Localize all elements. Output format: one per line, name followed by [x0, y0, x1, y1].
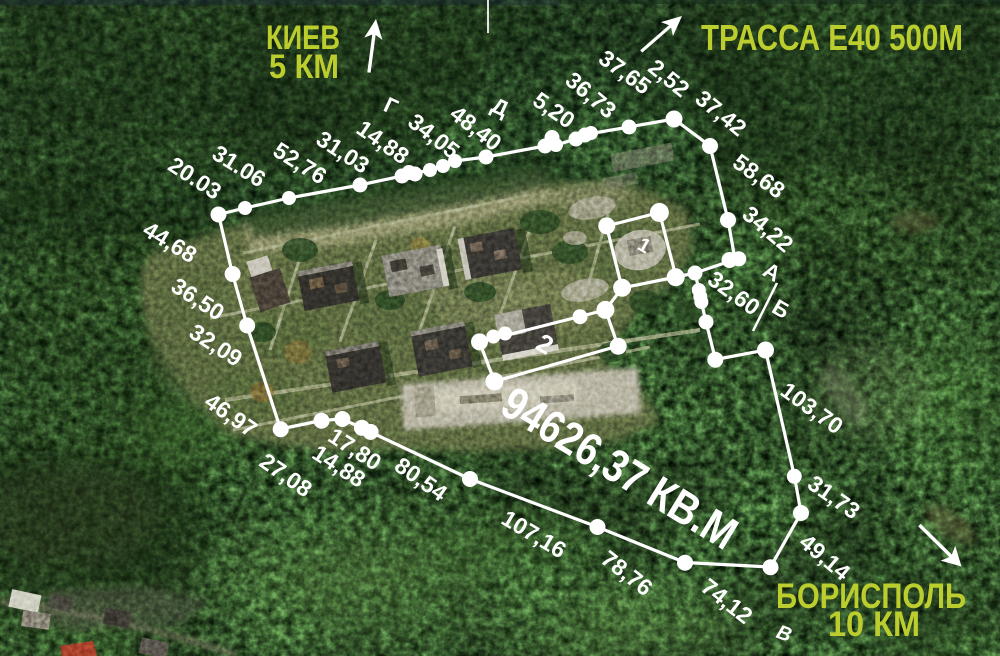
svg-text:5 КМ: 5 КМ — [269, 48, 339, 86]
svg-text:10 КМ: 10 КМ — [828, 605, 920, 644]
svg-text:ТРАССА Е40 500М: ТРАССА Е40 500М — [701, 17, 963, 58]
